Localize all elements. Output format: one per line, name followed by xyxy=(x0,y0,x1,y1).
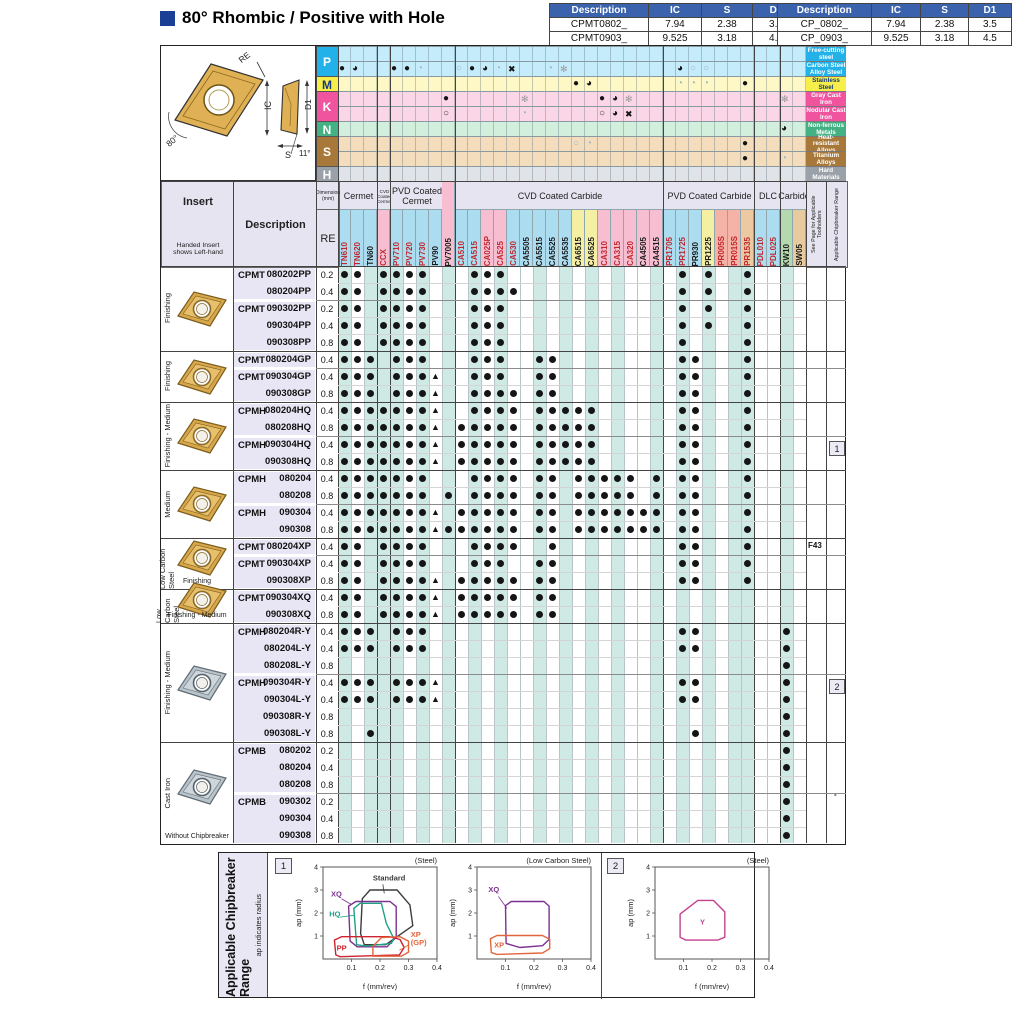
grade-dot xyxy=(484,577,491,584)
grade-triangle-icon: ▲ xyxy=(431,576,440,585)
app-cell xyxy=(611,137,624,152)
grade-dot xyxy=(471,339,478,346)
app-cell xyxy=(377,62,390,77)
chip-range-dash: - xyxy=(834,790,844,802)
grade-dot xyxy=(458,526,465,533)
app-mark-f-icon: ● xyxy=(443,94,449,104)
app-cell xyxy=(533,107,546,122)
grade-dot xyxy=(354,322,361,329)
grade-dot xyxy=(367,526,374,533)
app-cell xyxy=(715,77,728,92)
svg-text:4: 4 xyxy=(646,865,650,872)
grade-label: CA510 xyxy=(457,239,466,266)
grade-dot xyxy=(341,441,348,448)
insert-designation: 090302 xyxy=(279,796,311,807)
grade-dot xyxy=(471,543,478,550)
grade-dot xyxy=(588,407,595,414)
app-cell xyxy=(468,107,481,122)
row-line xyxy=(338,640,806,641)
grade-dot xyxy=(783,764,790,771)
chip-range-marker: 2 xyxy=(829,679,845,694)
app-cell xyxy=(403,122,416,137)
grade-header-CA5525: CA5525 xyxy=(546,209,559,266)
grade-dot xyxy=(341,696,348,703)
app-band-row: ○◔● xyxy=(338,136,806,151)
grade-label: PR1705 xyxy=(665,235,674,266)
app-cell xyxy=(689,137,702,152)
app-cell xyxy=(650,77,663,92)
app-cell xyxy=(611,152,624,167)
insert-designation: 090308PP xyxy=(267,337,311,348)
row-line xyxy=(338,334,806,335)
grade-dot xyxy=(601,509,608,516)
app-cell xyxy=(780,62,793,77)
grade-dot xyxy=(419,441,426,448)
grade-dot xyxy=(692,407,699,414)
grade-dot xyxy=(419,305,426,312)
grade-dot xyxy=(354,356,361,363)
app-cell xyxy=(663,137,676,152)
grade-dot xyxy=(419,594,426,601)
app-cell xyxy=(546,92,559,107)
insert-type: CPMH xyxy=(238,406,266,417)
grade-dot xyxy=(367,390,374,397)
app-cell xyxy=(533,122,546,137)
grade-header-CA320: CA320 xyxy=(624,209,637,266)
main-selection-table: RE IC 80° D1 S 11° Free-cutting steel●◕●… xyxy=(160,45,846,845)
app-cell xyxy=(663,122,676,137)
grade-header-CA525: CA525 xyxy=(494,209,507,266)
insert-type: CPMB xyxy=(238,746,266,757)
grade-dot xyxy=(419,339,426,346)
app-cell xyxy=(728,62,741,77)
grade-dot xyxy=(549,390,556,397)
app-cell xyxy=(520,122,533,137)
grade-label: PDL010 xyxy=(756,235,765,266)
grade-dot xyxy=(393,560,400,567)
grade-dot xyxy=(497,322,504,329)
grade-label: CA4515 xyxy=(652,235,661,266)
app-material-label: Free-cutting steel xyxy=(806,46,846,62)
grade-dot xyxy=(744,458,751,465)
app-cell xyxy=(793,137,806,152)
app-mark-lh-icon: ◔ xyxy=(781,154,787,164)
row-line xyxy=(338,759,806,760)
svg-text:RE: RE xyxy=(237,49,253,64)
app-cell xyxy=(494,122,507,137)
grade-dot xyxy=(458,424,465,431)
grade-dot xyxy=(406,458,413,465)
grade-dot xyxy=(601,475,608,482)
app-cell xyxy=(377,107,390,122)
grade-dot xyxy=(536,475,543,482)
app-cell xyxy=(676,92,689,107)
app-cell xyxy=(624,62,637,77)
app-cell: ● xyxy=(468,62,481,77)
app-cell xyxy=(611,77,624,92)
app-cell: ◔ xyxy=(416,62,429,77)
insert-designation: 090304XP xyxy=(267,558,311,569)
svg-text:2: 2 xyxy=(468,911,472,918)
app-cell xyxy=(793,47,806,62)
grade-dot xyxy=(354,492,361,499)
grade-dot xyxy=(471,475,478,482)
grade-dot xyxy=(549,594,556,601)
grade-dot xyxy=(419,322,426,329)
grade-dot xyxy=(341,560,348,567)
grade-dot xyxy=(380,611,387,618)
app-cell xyxy=(403,77,416,92)
app-cell xyxy=(728,107,741,122)
grade-header-CA510: CA510 xyxy=(455,209,468,266)
app-cell xyxy=(767,47,780,62)
insert-type: CPMT xyxy=(238,304,265,315)
app-cell xyxy=(507,137,520,152)
grade-dot xyxy=(744,492,751,499)
app-cell: ● xyxy=(741,77,754,92)
app-cell xyxy=(767,77,780,92)
chipbreaker-badge-1: 1 xyxy=(275,858,292,874)
grade-dot xyxy=(393,492,400,499)
app-cell xyxy=(481,92,494,107)
description-block: CPMH080204R-Y080204L-Y080208L-Y xyxy=(234,625,315,673)
insert-designation: 080202PP xyxy=(267,269,311,280)
insert-designation: 090304GP xyxy=(266,371,311,382)
grade-dot xyxy=(419,492,426,499)
app-cell xyxy=(507,47,520,62)
spec-cell: CP_0903_ xyxy=(778,32,872,46)
app-cell xyxy=(507,77,520,92)
grade-dot xyxy=(640,509,647,516)
app-mark-lo-icon: ○ xyxy=(703,64,709,74)
svg-text:0.2: 0.2 xyxy=(707,965,717,972)
app-cell xyxy=(533,62,546,77)
grade-dot xyxy=(549,424,556,431)
grade-dot xyxy=(783,628,790,635)
grade-header-PR1705: PR1705 xyxy=(663,209,676,266)
grade-label: CA6525 xyxy=(587,235,596,266)
grade-dot xyxy=(510,475,517,482)
grade-dot xyxy=(562,458,569,465)
grade-header-PV90: PV90 xyxy=(429,209,442,266)
app-cell xyxy=(741,47,754,62)
subgroup-line xyxy=(316,436,846,437)
group-side-label: Medium xyxy=(162,470,172,538)
app-cell xyxy=(429,122,442,137)
grade-dot xyxy=(653,509,660,516)
insert-type: CPMT xyxy=(238,355,265,366)
see-page-header-label: See Page for Applicable Toolholders xyxy=(811,182,823,267)
grade-dot xyxy=(380,594,387,601)
app-cell xyxy=(572,62,585,77)
row-line xyxy=(338,521,806,522)
grade-dot xyxy=(471,407,478,414)
grade-dot xyxy=(562,407,569,414)
grade-label: CA310 xyxy=(600,239,609,266)
insert-designation: 080204XP xyxy=(267,541,311,552)
grade-dot xyxy=(484,339,491,346)
grade-dot xyxy=(510,577,517,584)
app-material-label: Nodular Cast Iron xyxy=(806,106,846,122)
app-cell xyxy=(559,47,572,62)
app-cell xyxy=(520,137,533,152)
grade-dot xyxy=(497,560,504,567)
app-mark-lh-icon: ◔ xyxy=(703,79,709,89)
app-cell xyxy=(715,62,728,77)
app-cell xyxy=(377,122,390,137)
header-dimension: Dimension(mm) xyxy=(316,181,340,211)
grade-dot xyxy=(497,407,504,414)
page-title: 80° Rhombic / Positive with Hole xyxy=(182,8,445,28)
app-cell xyxy=(767,122,780,137)
grade-dot xyxy=(744,322,751,329)
app-cell xyxy=(702,107,715,122)
re-value: 0.4 xyxy=(316,440,338,450)
app-cell xyxy=(390,47,403,62)
grade-label: SW05 xyxy=(795,242,804,266)
grade-dot xyxy=(471,441,478,448)
grade-dot xyxy=(341,458,348,465)
svg-text:XQ: XQ xyxy=(488,885,499,894)
grade-dot xyxy=(419,390,426,397)
grade-dot xyxy=(380,441,387,448)
grade-dot xyxy=(614,475,621,482)
grade-dot xyxy=(393,577,400,584)
app-cell xyxy=(676,107,689,122)
grade-dot xyxy=(341,373,348,380)
app-cell xyxy=(598,137,611,152)
grade-dot xyxy=(653,526,660,533)
app-mark-h-icon: ◕ xyxy=(612,94,618,104)
app-cell xyxy=(676,137,689,152)
app-cell xyxy=(637,122,650,137)
app-mark-f-icon: ● xyxy=(404,64,410,74)
insert-type: CPMT xyxy=(238,372,265,383)
app-mark-o-icon: ○ xyxy=(599,109,605,119)
grade-dot xyxy=(549,611,556,618)
app-cell: ● xyxy=(403,62,416,77)
app-cell xyxy=(767,107,780,122)
grade-dot xyxy=(497,441,504,448)
app-cell xyxy=(689,107,702,122)
title-square-icon xyxy=(160,11,175,26)
grade-dot xyxy=(419,288,426,295)
grade-dot xyxy=(692,424,699,431)
grade-dot xyxy=(393,322,400,329)
app-cell xyxy=(429,62,442,77)
svg-text:Y: Y xyxy=(700,918,705,927)
grade-dot xyxy=(744,577,751,584)
grade-dot xyxy=(744,441,751,448)
grade-header-PV710: PV710 xyxy=(390,209,403,266)
grade-dot xyxy=(393,424,400,431)
grade-dot xyxy=(406,373,413,380)
grade-dot xyxy=(471,509,478,516)
app-cell xyxy=(494,77,507,92)
app-cell xyxy=(780,137,793,152)
grade-dot xyxy=(406,645,413,652)
app-mark-f-icon: ● xyxy=(599,94,605,104)
app-cell xyxy=(663,47,676,62)
grade-dot xyxy=(380,526,387,533)
app-cell xyxy=(377,92,390,107)
app-mark-h-icon: ◕ xyxy=(482,64,488,74)
app-cell xyxy=(598,152,611,167)
grade-label: PV90 xyxy=(431,244,440,266)
grade-header-KW10: KW10 xyxy=(780,209,793,266)
app-cell xyxy=(403,137,416,152)
grade-header-PR1225: PR1225 xyxy=(702,209,715,266)
grade-header-CA6525: CA6525 xyxy=(585,209,598,266)
grade-dot xyxy=(458,594,465,601)
grade-dot xyxy=(380,271,387,278)
grade-dot xyxy=(445,526,452,533)
grade-dot xyxy=(380,339,387,346)
grade-dot xyxy=(471,458,478,465)
insert-designation: 090304XQ xyxy=(266,592,311,603)
grade-header-CA025P: CA025P xyxy=(481,209,494,266)
insert-designation: 080204R-Y xyxy=(263,626,311,637)
app-cell: ✻ xyxy=(780,92,793,107)
insert-designation: 090308 xyxy=(279,830,311,841)
app-cell xyxy=(741,107,754,122)
grade-dot xyxy=(575,441,582,448)
app-cell xyxy=(351,152,364,167)
app-cell xyxy=(533,137,546,152)
grade-header-TN620: TN620 xyxy=(351,209,364,266)
spec-col-IC: IC xyxy=(871,4,921,18)
grade-dot xyxy=(783,645,790,652)
spec-cell: 3.5 xyxy=(968,18,1011,32)
app-cell xyxy=(546,137,559,152)
insert-type: CPMH xyxy=(238,474,266,485)
grade-dot xyxy=(614,526,621,533)
app-cell xyxy=(364,77,377,92)
chart-low-carbon-steel: 0.10.20.30.41234(Low Carbon Steel)f (mm/… xyxy=(447,855,597,998)
grade-label: TN60 xyxy=(366,244,375,266)
grade-dot xyxy=(471,305,478,312)
app-cell xyxy=(585,47,598,62)
grade-dot xyxy=(692,560,699,567)
description-block: CPMH080204080208 xyxy=(234,472,315,503)
grade-triangle-icon: ▲ xyxy=(431,440,440,449)
insert-photo-silver xyxy=(174,766,230,808)
app-cell xyxy=(455,47,468,62)
app-cell xyxy=(403,107,416,122)
app-mark-sn-icon: ✻ xyxy=(625,95,633,104)
grade-dot xyxy=(406,441,413,448)
grade-dot xyxy=(341,509,348,516)
app-cell xyxy=(442,62,455,77)
grade-dot xyxy=(341,271,348,278)
app-band-row: ●◔ xyxy=(338,151,806,166)
app-mark-h-icon: ◕ xyxy=(612,109,618,119)
subgroup-line xyxy=(316,674,846,675)
app-cell xyxy=(702,92,715,107)
app-cell xyxy=(572,47,585,62)
grade-dot xyxy=(380,407,387,414)
app-band-row xyxy=(338,46,806,61)
app-mark-f-icon: ● xyxy=(469,64,475,74)
insert-photo-gold xyxy=(174,288,230,330)
grade-label: PDL025 xyxy=(769,235,778,266)
app-cell xyxy=(507,152,520,167)
group-side-label: Finishing - Medium xyxy=(162,623,172,742)
grade-dot xyxy=(341,424,348,431)
app-cell xyxy=(637,107,650,122)
grade-dot xyxy=(549,492,556,499)
grade-dot xyxy=(744,356,751,363)
app-cell xyxy=(338,47,351,62)
grade-dot xyxy=(380,543,387,550)
grade-label: CA315 xyxy=(613,239,622,266)
app-cell xyxy=(390,92,403,107)
grade-dot xyxy=(588,458,595,465)
grade-dot xyxy=(536,441,543,448)
description-block: CPMT080204GP xyxy=(234,353,315,367)
grade-dot xyxy=(510,390,517,397)
grade-dot xyxy=(484,509,491,516)
app-mark-o-icon: ○ xyxy=(443,109,449,119)
grade-header-CA310: CA310 xyxy=(598,209,611,266)
grade-dot xyxy=(393,373,400,380)
grade-dot xyxy=(588,526,595,533)
app-cell: ◔ xyxy=(689,77,702,92)
grade-dot xyxy=(783,832,790,839)
side-label-text: Finishing - Medium xyxy=(163,651,172,714)
spec-cell: 7.94 xyxy=(871,18,921,32)
app-band-row xyxy=(338,166,806,181)
chipbreaker-range-section: Applicable Chipbreaker Range ap indicate… xyxy=(218,852,755,998)
subgroup-line xyxy=(316,555,846,556)
spec-cell: 9.525 xyxy=(649,32,702,46)
svg-text:11°: 11° xyxy=(299,149,311,158)
insert-designation: 090308XP xyxy=(267,575,311,586)
app-cell xyxy=(754,107,767,122)
app-cell xyxy=(468,92,481,107)
app-cell: ◔ xyxy=(585,137,598,152)
insert-caption: Without Chipbreaker xyxy=(162,833,232,843)
grade-dot xyxy=(471,288,478,295)
grade-dot xyxy=(471,611,478,618)
app-mark-lh-icon: ◔ xyxy=(547,64,553,74)
app-material-label: Carbon SteelAlloy Steel xyxy=(806,61,846,77)
svg-text:f (mm/rev): f (mm/rev) xyxy=(363,982,398,991)
grade-label: CA6515 xyxy=(574,235,583,266)
row-line xyxy=(338,776,806,777)
grade-dot xyxy=(536,424,543,431)
group-divider-line xyxy=(390,46,392,843)
insert-designation: 090308XQ xyxy=(266,609,311,620)
grade-dot xyxy=(679,492,686,499)
app-cell xyxy=(728,47,741,62)
page-title-row: 80° Rhombic / Positive with Hole xyxy=(160,6,580,30)
app-cell xyxy=(624,122,637,137)
grade-header-PV730: PV730 xyxy=(416,209,429,266)
app-cell xyxy=(416,137,429,152)
app-cell xyxy=(455,152,468,167)
grade-header-CA4515: CA4515 xyxy=(650,209,663,266)
grade-dot xyxy=(354,305,361,312)
grade-dot xyxy=(679,373,686,380)
grade-dot xyxy=(536,492,543,499)
app-cell xyxy=(416,152,429,167)
app-cell xyxy=(442,152,455,167)
grade-dot xyxy=(354,407,361,414)
app-cell xyxy=(364,92,377,107)
header-top-line xyxy=(161,181,846,183)
app-cell: ● xyxy=(338,62,351,77)
